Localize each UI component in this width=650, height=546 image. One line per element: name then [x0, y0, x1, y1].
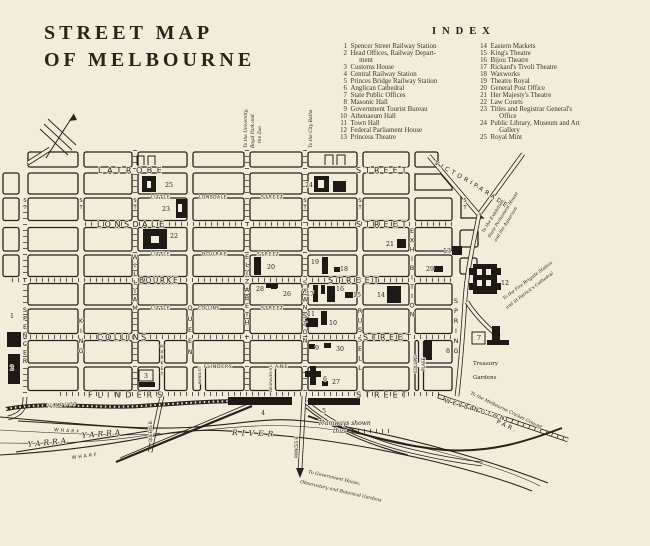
building-footprint	[228, 397, 292, 405]
street-label-vertical: X	[410, 236, 415, 244]
street-label: STREET	[257, 252, 280, 258]
street-label: DEGRAVES ST	[268, 365, 273, 392]
city-block	[28, 284, 78, 306]
index-entry: 11Town Hall	[336, 120, 476, 127]
street-label: FLINDERS	[204, 364, 232, 370]
street-label: LITTLE	[151, 306, 170, 312]
index-entry-number: 15	[476, 50, 487, 57]
street-label: PARADE	[472, 182, 511, 211]
building-footprint	[7, 332, 21, 347]
index-entry: 4Central Railway Station	[336, 71, 476, 78]
index-entry-number: 19	[476, 78, 487, 85]
map-marker: 19	[311, 259, 319, 266]
street-label: STREET	[328, 276, 383, 285]
map-page: LATROBESTREETLITTLELONSDALESTREETLONSDAL…	[0, 0, 650, 546]
street-label-vertical: E	[188, 337, 192, 345]
street-label: YARRA	[81, 427, 123, 440]
page-title: STREET MAP OF MELBOURNE	[44, 20, 255, 74]
building-footprint	[327, 286, 335, 302]
map-marker: 18	[340, 266, 348, 273]
street-label-vertical: G	[78, 347, 83, 355]
street-label: COLLINS	[97, 333, 149, 342]
city-block	[165, 341, 188, 364]
street-label-vertical: C	[23, 340, 28, 348]
map-marker: 9	[315, 345, 319, 352]
index-entry-number: 2	[336, 50, 347, 64]
street-label-vertical: L	[133, 279, 137, 287]
street-label: LANE	[271, 364, 289, 370]
index-column-left: 1Spencer Street Railway Station2Head Off…	[336, 43, 476, 141]
street-label: STREET	[356, 166, 411, 175]
building-courtyard	[477, 269, 482, 275]
building-footprint	[345, 292, 353, 298]
index-entry-number: 25	[476, 134, 487, 141]
index-entry: 19Theatre Royal	[476, 78, 636, 85]
street-label: RIVER	[231, 428, 277, 439]
street-label-vertical: G	[453, 347, 458, 355]
map-marker: 26	[283, 291, 291, 298]
building-footprint	[321, 285, 325, 294]
building-courtyard	[477, 280, 482, 286]
index-entry-label: Bijou Theatre	[491, 57, 529, 64]
street-label-vertical: P	[454, 307, 458, 315]
map-marker: 17	[306, 291, 314, 298]
city-block	[250, 341, 302, 364]
street-label-vertical: N	[188, 348, 193, 356]
map-marker: 24	[305, 182, 313, 189]
street-label-vertical: R	[358, 307, 363, 315]
map-marker: 22	[170, 233, 178, 240]
city-block	[363, 367, 409, 391]
street-label: COLLINS	[198, 306, 219, 312]
road-surface	[300, 396, 304, 470]
street-label: Royal Park and	[251, 114, 256, 149]
street-label: BOND ST	[197, 366, 202, 384]
building-footprint	[387, 286, 401, 303]
city-block	[84, 255, 132, 277]
street-label: PLACE	[421, 357, 426, 371]
city-block	[84, 341, 132, 364]
page-title-line2: OF MELBOURNE	[44, 47, 255, 74]
index-entry-number: 11	[336, 120, 347, 127]
city-block	[28, 309, 78, 334]
index-entry: 20General Post Office	[476, 85, 636, 92]
city-block	[28, 228, 78, 252]
street-label-vertical: S	[23, 198, 26, 204]
index-entry: 7State Public Offices	[336, 92, 476, 99]
index-entry: 15King's Theatre	[476, 50, 636, 57]
city-block	[415, 198, 452, 221]
street-label-vertical: N	[410, 311, 415, 319]
street-label-vertical: H	[410, 246, 415, 254]
building-footprint	[497, 268, 501, 275]
street-label-vertical: S	[303, 279, 307, 287]
street-label-vertical: S	[23, 306, 27, 314]
street-label-vertical: I	[411, 255, 413, 263]
map-marker: 15	[353, 292, 361, 299]
building-footprint	[273, 284, 278, 288]
street-label-vertical: S	[303, 198, 306, 204]
index-entry-number: 3	[336, 64, 347, 71]
viaduct-band	[6, 401, 244, 409]
street-label-vertical: E	[23, 349, 27, 357]
street-label-vertical: K	[79, 317, 84, 325]
street-label-vertical: T	[160, 372, 164, 378]
index-entry-number: 17	[476, 64, 487, 71]
index-entry-label: State Public Offices	[351, 92, 406, 99]
city-block	[84, 284, 132, 306]
index-entry-label: Waxworks	[491, 71, 520, 78]
index-entry-number: 8	[336, 99, 347, 106]
street-label-vertical: S	[463, 198, 466, 204]
index-entry-number: 1	[336, 43, 347, 50]
city-block	[250, 309, 302, 334]
street-label: thus	[333, 428, 346, 435]
city-block	[138, 341, 160, 364]
index-entry-label: Princess Theatre	[351, 134, 397, 141]
street-label: Gardens	[473, 375, 497, 381]
index-entry: 9Government Tourist Bureau	[336, 106, 476, 113]
street-label-vertical: I	[246, 269, 248, 277]
city-block	[28, 341, 78, 364]
index-entry: 13Princess Theatre	[336, 134, 476, 141]
city-block	[28, 255, 78, 277]
map-marker: 4	[261, 410, 265, 417]
street-label-vertical: E	[358, 345, 362, 353]
map-marker: 13	[443, 248, 451, 255]
city-block	[193, 255, 244, 277]
street-label-vertical: S	[133, 198, 136, 204]
street-label-vertical: P	[23, 315, 27, 323]
map-marker: 25	[165, 182, 173, 189]
street-label-vertical: B	[410, 264, 414, 272]
street-label-vertical: T	[357, 205, 362, 211]
map-marker: 11	[307, 311, 315, 318]
street-label-vertical: S	[358, 198, 361, 204]
street-label: STREET	[356, 220, 411, 229]
building-footprint	[452, 246, 462, 255]
index-entry-label: Titles and Registrar General's Office	[491, 106, 573, 120]
street-label: LONSDALE	[97, 220, 168, 229]
index-columns: 1Spencer Street Railway Station2Head Off…	[336, 43, 636, 141]
index-entry-label: Spencer Street Railway Station	[351, 43, 437, 50]
building-courtyard	[151, 236, 159, 243]
index-entry-label: Theatre Royal	[491, 78, 530, 85]
street-label-vertical: L	[245, 261, 249, 269]
index-entry-number: 24	[476, 120, 487, 134]
city-block	[138, 284, 187, 306]
street-label: LITTLE	[151, 195, 170, 201]
index-entry: 17Rickard's Tivoli Theatre	[476, 64, 636, 71]
street-label-vertical: S	[358, 326, 362, 334]
index-entry: 10Athenaeum Hall	[336, 113, 476, 120]
street-label-vertical: Q	[187, 304, 192, 312]
street-label-vertical: T	[302, 320, 307, 328]
city-block	[28, 367, 78, 391]
city-block	[424, 367, 453, 391]
street-label-vertical: S	[454, 297, 458, 305]
index-entry-label: Head Offices, Railway Depart- ment	[351, 50, 437, 64]
index-entry-number: 9	[336, 106, 347, 113]
street-label: STREET	[363, 333, 415, 342]
street-label-vertical: I	[455, 327, 457, 335]
street-label-vertical: N	[303, 336, 308, 344]
building-courtyard	[486, 280, 491, 286]
city-block	[138, 255, 187, 277]
building-footprint	[469, 283, 473, 290]
city-block	[193, 173, 244, 194]
street-label-vertical: A	[245, 286, 250, 294]
index-entry: 2Head Offices, Railway Depart- ment	[336, 50, 476, 64]
street-label-vertical: O	[409, 301, 414, 309]
city-block	[84, 152, 132, 167]
index-entry-number: 20	[476, 85, 487, 92]
street-label-vertical: N	[23, 332, 28, 340]
building-footprint	[322, 257, 328, 274]
building-footprint	[492, 326, 500, 342]
index-entry-number: 14	[476, 43, 487, 50]
street-label: VIADUCT	[48, 401, 79, 409]
street-label: BOURKE	[139, 276, 179, 285]
building-footprint	[321, 311, 327, 325]
map-marker: 5	[322, 408, 326, 415]
index-entry: 12Federal Parliament House	[336, 127, 476, 134]
street-label-vertical: L	[358, 355, 362, 363]
map-marker: 21	[386, 241, 394, 248]
street-label: LATROBE	[98, 166, 166, 175]
map-marker: 6	[323, 376, 327, 383]
street-label-vertical: L	[133, 270, 137, 278]
building-courtyard	[147, 181, 151, 188]
city-block	[363, 152, 409, 167]
street-label-vertical: I	[134, 262, 136, 270]
index-entry-label: Central Railway Station	[351, 71, 417, 78]
index-entry-label: Masonic Hall	[351, 99, 388, 106]
street-label: LITTLE	[151, 252, 170, 258]
index-entry: 1Spencer Street Railway Station	[336, 43, 476, 50]
index-entry: 25Royal Mint	[476, 134, 636, 141]
index-entry-label: Royal Mint	[491, 134, 523, 141]
street-label-vertical: W	[132, 253, 139, 261]
street-label-vertical: E	[188, 326, 192, 334]
city-block	[415, 309, 452, 334]
south-road-arrow	[296, 468, 304, 478]
street-label-vertical: T	[22, 205, 27, 211]
index-entry-label: Customs House	[351, 64, 394, 71]
street-label-vertical: T	[409, 283, 414, 291]
building-footprint	[469, 268, 473, 275]
map-marker: 12	[501, 280, 509, 287]
street-label-vertical: L	[358, 364, 362, 372]
street-label: COLLINS	[413, 355, 418, 373]
city-block	[276, 367, 303, 391]
street-label: BOURKE	[202, 252, 228, 258]
street-label-vertical: A	[133, 296, 138, 304]
city-block	[193, 198, 244, 221]
city-block	[3, 198, 19, 221]
building-footprint	[333, 181, 346, 192]
street-label-vertical: U	[188, 315, 193, 323]
street-label-vertical: N	[79, 337, 84, 345]
index-entry-label: Law Courts	[491, 99, 523, 106]
street-label-vertical: R	[454, 317, 459, 325]
street-label-vertical: A	[160, 350, 163, 356]
street-label-vertical: I	[134, 287, 136, 295]
street-label: Observatory and Botanical Gardens	[300, 479, 383, 504]
street-label-vertical: M	[132, 304, 138, 312]
city-block	[3, 228, 19, 252]
street-label-vertical: R	[160, 355, 163, 361]
building-footprint	[434, 266, 443, 272]
building-footprint	[254, 257, 261, 275]
street-label: FLINDERS	[88, 391, 167, 400]
city-block	[250, 173, 302, 194]
index-entry-label: King's Theatre	[491, 50, 531, 57]
city-block	[138, 152, 187, 167]
street-label-vertical: B	[245, 294, 249, 302]
index-entry-label: Anglican Cathedral	[351, 85, 405, 92]
map-marker: 14	[377, 292, 385, 299]
index-entry-number: 10	[336, 113, 347, 120]
city-block	[415, 284, 452, 306]
index-entry-number: 6	[336, 85, 347, 92]
index-entry-label: Government Tourist Bureau	[351, 106, 428, 113]
street-label-vertical: E	[245, 253, 249, 261]
city-block	[84, 198, 132, 221]
building-footprint	[473, 264, 497, 294]
index-entry-label: Federal Parliament House	[351, 127, 423, 134]
index-entry-number: 5	[336, 78, 347, 85]
street-label: PRINCES B.	[294, 435, 299, 458]
street-label-vertical: I	[411, 292, 413, 300]
index-entry-label: Her Majesty's Theatre	[491, 92, 552, 99]
street-label-vertical: K	[161, 361, 164, 367]
street-label-vertical: N	[454, 337, 459, 345]
map-marker: 23	[162, 206, 170, 213]
index-entry: 22Law Courts	[476, 99, 636, 106]
street-label: STREET	[261, 306, 284, 312]
page-title-line1: STREET MAP	[44, 20, 255, 47]
city-block	[363, 284, 409, 306]
map-marker: 1	[10, 313, 14, 320]
index-entry-number: 16	[476, 57, 487, 64]
index-entry: 21Her Majesty's Theatre	[476, 92, 636, 99]
index-entry-number: 4	[336, 71, 347, 78]
street-label-vertical: E	[23, 323, 27, 331]
street-label-vertical: T	[244, 310, 249, 318]
street-label: QUEENS B.	[148, 420, 153, 442]
index-entry-label: Athenaeum Hall	[351, 113, 396, 120]
index-entry-number: 18	[476, 71, 487, 78]
city-block	[250, 152, 302, 167]
street-label: To the City Baths	[309, 109, 314, 148]
index-entry-label: Town Hall	[351, 120, 380, 127]
street-label: Treasury	[473, 361, 499, 367]
index-entry-label: Princes Bridge Railway Station	[351, 78, 438, 85]
index-entry: 6Anglican Cathedral	[336, 85, 476, 92]
city-block	[363, 198, 409, 221]
building-footprint	[308, 398, 360, 405]
map-marker: 16	[336, 286, 344, 293]
city-block	[165, 367, 188, 391]
city-block	[206, 367, 245, 391]
building-footprint	[324, 343, 331, 348]
city-block	[308, 198, 357, 221]
building-footprint	[424, 340, 432, 360]
index-entry-label: General Post Office	[491, 85, 546, 92]
city-block	[28, 198, 78, 221]
street-label-vertical: Z	[245, 278, 250, 286]
index-entry-number: 22	[476, 99, 487, 106]
street-label-vertical: E	[410, 227, 414, 235]
street-label-vertical: R	[23, 357, 28, 365]
building-courtyard	[486, 269, 491, 275]
street-label-vertical: T	[78, 205, 83, 211]
street-label-vertical: E	[161, 366, 164, 372]
index-entry: 23Titles and Registrar General's Office	[476, 106, 636, 120]
map-marker: 30	[336, 346, 344, 353]
index-entry-number: 13	[336, 134, 347, 141]
index-column-right: 14Eastern Markets15King's Theatre16Bijou…	[476, 43, 636, 141]
street-label: Tramways shown	[318, 420, 371, 427]
building-footprint	[266, 284, 271, 288]
index-entry-label: Eastern Markets	[491, 43, 536, 50]
street-label: To the University,	[244, 108, 249, 148]
street-label: STREET	[261, 195, 284, 201]
index-entry: 14Eastern Markets	[476, 43, 636, 50]
city-block	[193, 341, 244, 364]
street-label-vertical: M	[160, 344, 164, 350]
index-entry: 24Public Library, Museum and Art Gallery	[476, 120, 636, 134]
street-label: WHARF	[54, 427, 81, 435]
index-entry-number: 12	[336, 127, 347, 134]
city-block	[84, 309, 132, 334]
city-block	[363, 173, 409, 194]
city-block	[250, 198, 302, 221]
city-block	[138, 309, 187, 334]
building-courtyard	[178, 204, 182, 212]
index-entry: 3Customs House	[336, 64, 476, 71]
street-label-vertical: U	[358, 317, 363, 325]
building-footprint	[397, 239, 406, 248]
street-label-vertical: E	[245, 302, 249, 310]
street-label-vertical: S	[358, 336, 362, 344]
map-marker: 20	[267, 264, 275, 271]
index-entry-number: 23	[476, 106, 487, 120]
map-marker: 2	[10, 365, 14, 372]
city-block	[84, 367, 132, 391]
city-block	[3, 255, 19, 277]
city-block	[3, 173, 19, 194]
city-block	[84, 228, 132, 252]
index-entry: 18Waxworks	[476, 71, 636, 78]
street-label: WHARF	[72, 452, 100, 461]
building-footprint	[139, 382, 155, 387]
map-marker: 8	[446, 348, 450, 355]
map-marker: 27	[332, 379, 340, 386]
map-marker: 10	[329, 320, 337, 327]
city-block	[193, 284, 244, 306]
city-block	[250, 228, 302, 252]
index-entry-label: Public Library, Museum and Art Gallery	[491, 120, 580, 134]
index-entry-label: Rickard's Tivoli Theatre	[491, 64, 558, 71]
map-marker: 29	[426, 266, 434, 273]
street-label-vertical: H	[245, 319, 250, 327]
map-marker: 7	[477, 335, 481, 342]
building-courtyard	[318, 180, 324, 188]
city-block	[363, 341, 409, 364]
city-block	[84, 173, 132, 194]
